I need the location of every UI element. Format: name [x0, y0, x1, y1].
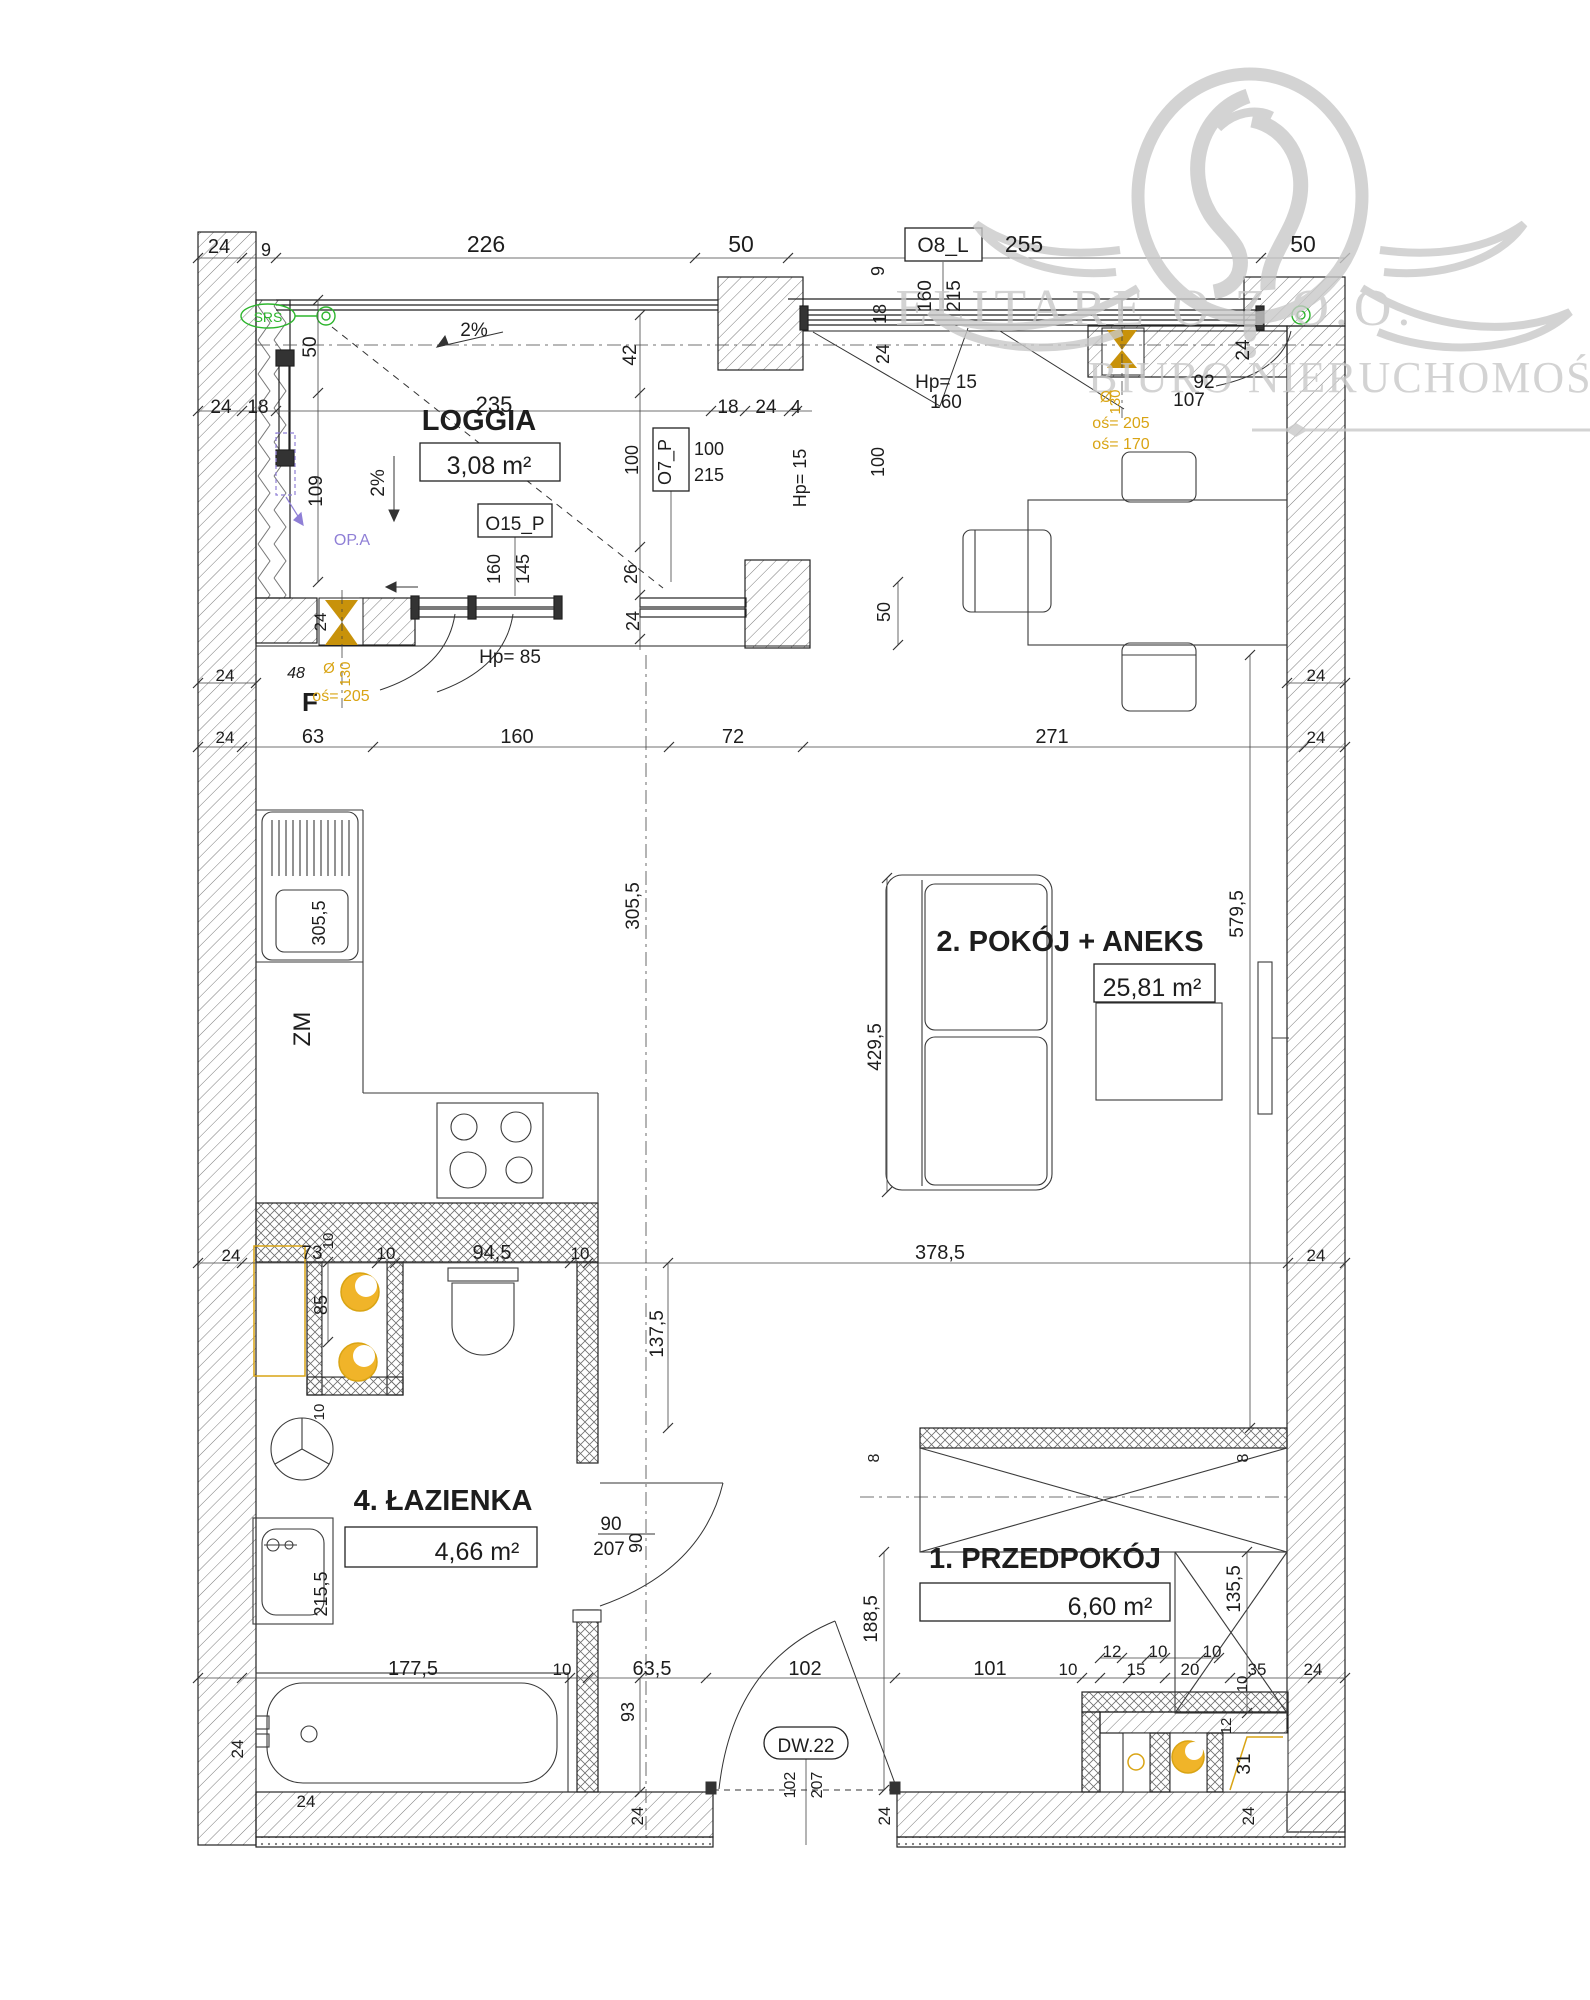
dim-label: 9 [868, 266, 888, 276]
dim-label: 24 [875, 1807, 894, 1826]
tag-window-o15p: O15_P [485, 514, 544, 535]
dim-label: 10 [377, 1244, 396, 1263]
dim-label: 107 [1173, 390, 1205, 411]
tv [1258, 962, 1272, 1114]
dim-label: 4 [791, 397, 801, 417]
chair [1122, 643, 1196, 711]
dim-label: 378,5 [915, 1242, 965, 1264]
dim-label: 130 [1107, 389, 1124, 414]
dishwasher-label: ZM [289, 1012, 316, 1047]
slope-label: 2% [368, 469, 389, 497]
slope-label: 2% [460, 320, 488, 341]
dim-label: Hp= 15 [790, 449, 810, 508]
dim-label: 24 [1239, 1807, 1258, 1826]
room-label-loggia: LOGGIA [422, 405, 536, 437]
dim-label: 271 [1035, 726, 1068, 748]
room-label-przedpokoj: 1. PRZEDPOKÓJ [929, 1541, 1161, 1575]
dim-label: 160 [930, 392, 962, 413]
dim-label: 10 [1149, 1642, 1168, 1661]
dim-label: 48 [287, 665, 305, 682]
dim-label: 24 [755, 397, 777, 418]
dim-label: 207 [809, 1772, 826, 1799]
dim-label: 160 [915, 280, 936, 312]
dim-label: 24 [208, 236, 230, 258]
room-area-przedpokoj: 6,60 m² [1068, 1593, 1153, 1621]
sofa [886, 875, 1052, 1190]
watermark-subtitle: BIURO NIERUCHOMOŚCI [1088, 353, 1590, 402]
dim-label: 85 [311, 1295, 331, 1315]
dim-label: 10 [553, 1660, 572, 1679]
watermark: ELITARE O Z O.O. BIURO NIERUCHOMOŚCI [896, 74, 1590, 437]
dim-label: 145 [513, 554, 533, 584]
dim-label: 12 [1218, 1718, 1235, 1735]
dim-label: 24 [1304, 1660, 1323, 1679]
dim-label: 8 [866, 1453, 883, 1462]
dim-label: 207 [593, 1539, 625, 1560]
dim-label: 10 [311, 1404, 328, 1421]
dim-label: 579,5 [1227, 890, 1248, 938]
dim-label: 20 [1181, 1660, 1200, 1679]
annotation-srs: SRS [254, 309, 283, 325]
dim-label: 26 [621, 564, 641, 584]
dim-label: 102 [788, 1658, 821, 1680]
tag-window-o7p: O7_P [655, 439, 676, 485]
room-label-lazienka: 4. ŁAZIENKA [354, 1485, 533, 1517]
dim-label: 137,5 [647, 1310, 668, 1358]
dim-label: 10 [1059, 1660, 1078, 1679]
dim-label: 18 [717, 397, 738, 418]
dim-label: 305,5 [623, 882, 644, 930]
dim-label: 31 [1234, 1753, 1255, 1774]
dim-label: 24 [216, 666, 235, 685]
dim-label: Ø [323, 660, 335, 677]
dim-label: oś= 205 [312, 688, 369, 705]
dim-label: 101 [973, 1658, 1006, 1680]
room-area-lazienka: 4,66 m² [435, 1538, 520, 1566]
dim-label: 10 [571, 1244, 590, 1263]
dim-label: 12 [1103, 1642, 1122, 1661]
dim-label: 93 [618, 1702, 638, 1722]
dim-label: 15 [1127, 1660, 1146, 1679]
dim-label: oś= 205 [1092, 415, 1149, 432]
annotation-opa: OP.A [334, 532, 371, 549]
dimension-layer [193, 253, 1350, 1845]
dim-label: 10 [320, 1233, 337, 1250]
dim-label: 63,5 [633, 1658, 672, 1680]
dim-label: 102 [782, 1772, 799, 1799]
dim-label: 429,5 [865, 1023, 886, 1071]
dim-label: 90 [626, 1533, 646, 1553]
dim-label: 24 [623, 611, 643, 631]
dim-label: Hp= 85 [479, 647, 541, 668]
room-area-loggia: 3,08 m² [447, 452, 532, 480]
dim-label: oś= 170 [1092, 436, 1149, 453]
dim-label: 100 [868, 447, 888, 477]
chair [963, 530, 1051, 612]
dim-label: 215 [944, 280, 965, 312]
dim-label: 24 [1307, 728, 1326, 747]
dim-label: 24 [873, 344, 893, 364]
dim-label: 160 [484, 554, 504, 584]
dim-label: 9 [261, 240, 271, 260]
dim-label: 24 [210, 397, 232, 418]
dim-label: 24 [1233, 339, 1254, 361]
dim-label: 50 [300, 336, 321, 357]
dim-label: 24 [1307, 666, 1326, 685]
dim-label: 305,5 [309, 900, 329, 945]
tv-stand [1096, 1003, 1222, 1100]
dim-label: 94,5 [473, 1242, 512, 1264]
dim-label: 215 [694, 465, 724, 485]
dining-table [1028, 500, 1287, 645]
tag-window-o8l: O8_L [917, 234, 968, 257]
dim-label: 50 [728, 231, 754, 257]
dim-label: 8 [1235, 1453, 1252, 1462]
dim-label: 10 [1234, 1676, 1251, 1693]
dim-label: 160 [500, 726, 533, 748]
dim-label: 135,5 [1224, 1565, 1245, 1613]
room-label-pokoj: 2. POKÓJ + ANEKS [936, 924, 1203, 958]
dim-label: 10 [1203, 1642, 1222, 1661]
dim-label: 90 [600, 1514, 621, 1535]
dim-label: 188,5 [861, 1595, 882, 1643]
chair [1122, 452, 1196, 502]
dim-label: 50 [874, 602, 894, 622]
dim-label: 215,5 [311, 1571, 331, 1616]
dim-label: 63 [302, 726, 324, 748]
dim-label: 24 [216, 728, 235, 747]
bathtub [256, 1673, 568, 1792]
toilet [448, 1268, 518, 1281]
dim-label: 100 [694, 439, 724, 459]
entry-door-arc [719, 1621, 835, 1789]
dim-label: 226 [467, 231, 505, 257]
watermark-brand-right: O Z O.O. [1172, 280, 1416, 337]
dim-label: 18 [870, 304, 890, 324]
dim-label: 24 [628, 1807, 647, 1826]
dim-label: 42 [620, 344, 641, 365]
tag-door-dw22: DW.22 [777, 1736, 834, 1757]
dim-label: Hp= 15 [915, 372, 977, 393]
dim-label: 255 [1005, 231, 1043, 257]
dim-label: 24 [297, 1792, 316, 1811]
dim-label: 18 [247, 397, 268, 418]
room-area-pokoj: 25,81 m² [1103, 974, 1202, 1002]
dim-label: 24 [311, 613, 330, 632]
dim-label: 130 [337, 661, 354, 686]
floor-plan-canvas: ELITARE O Z O.O. BIURO NIERUCHOMOŚCI 249… [0, 0, 1590, 2000]
dim-label: 24 [222, 1246, 241, 1265]
dim-label: 100 [622, 445, 642, 475]
dim-label: 109 [306, 475, 327, 507]
dim-label: 24 [1307, 1246, 1326, 1265]
dim-label: 24 [228, 1740, 247, 1759]
dim-label: 50 [1290, 231, 1316, 257]
dim-label: 177,5 [388, 1658, 438, 1680]
dim-label: 72 [722, 726, 744, 748]
